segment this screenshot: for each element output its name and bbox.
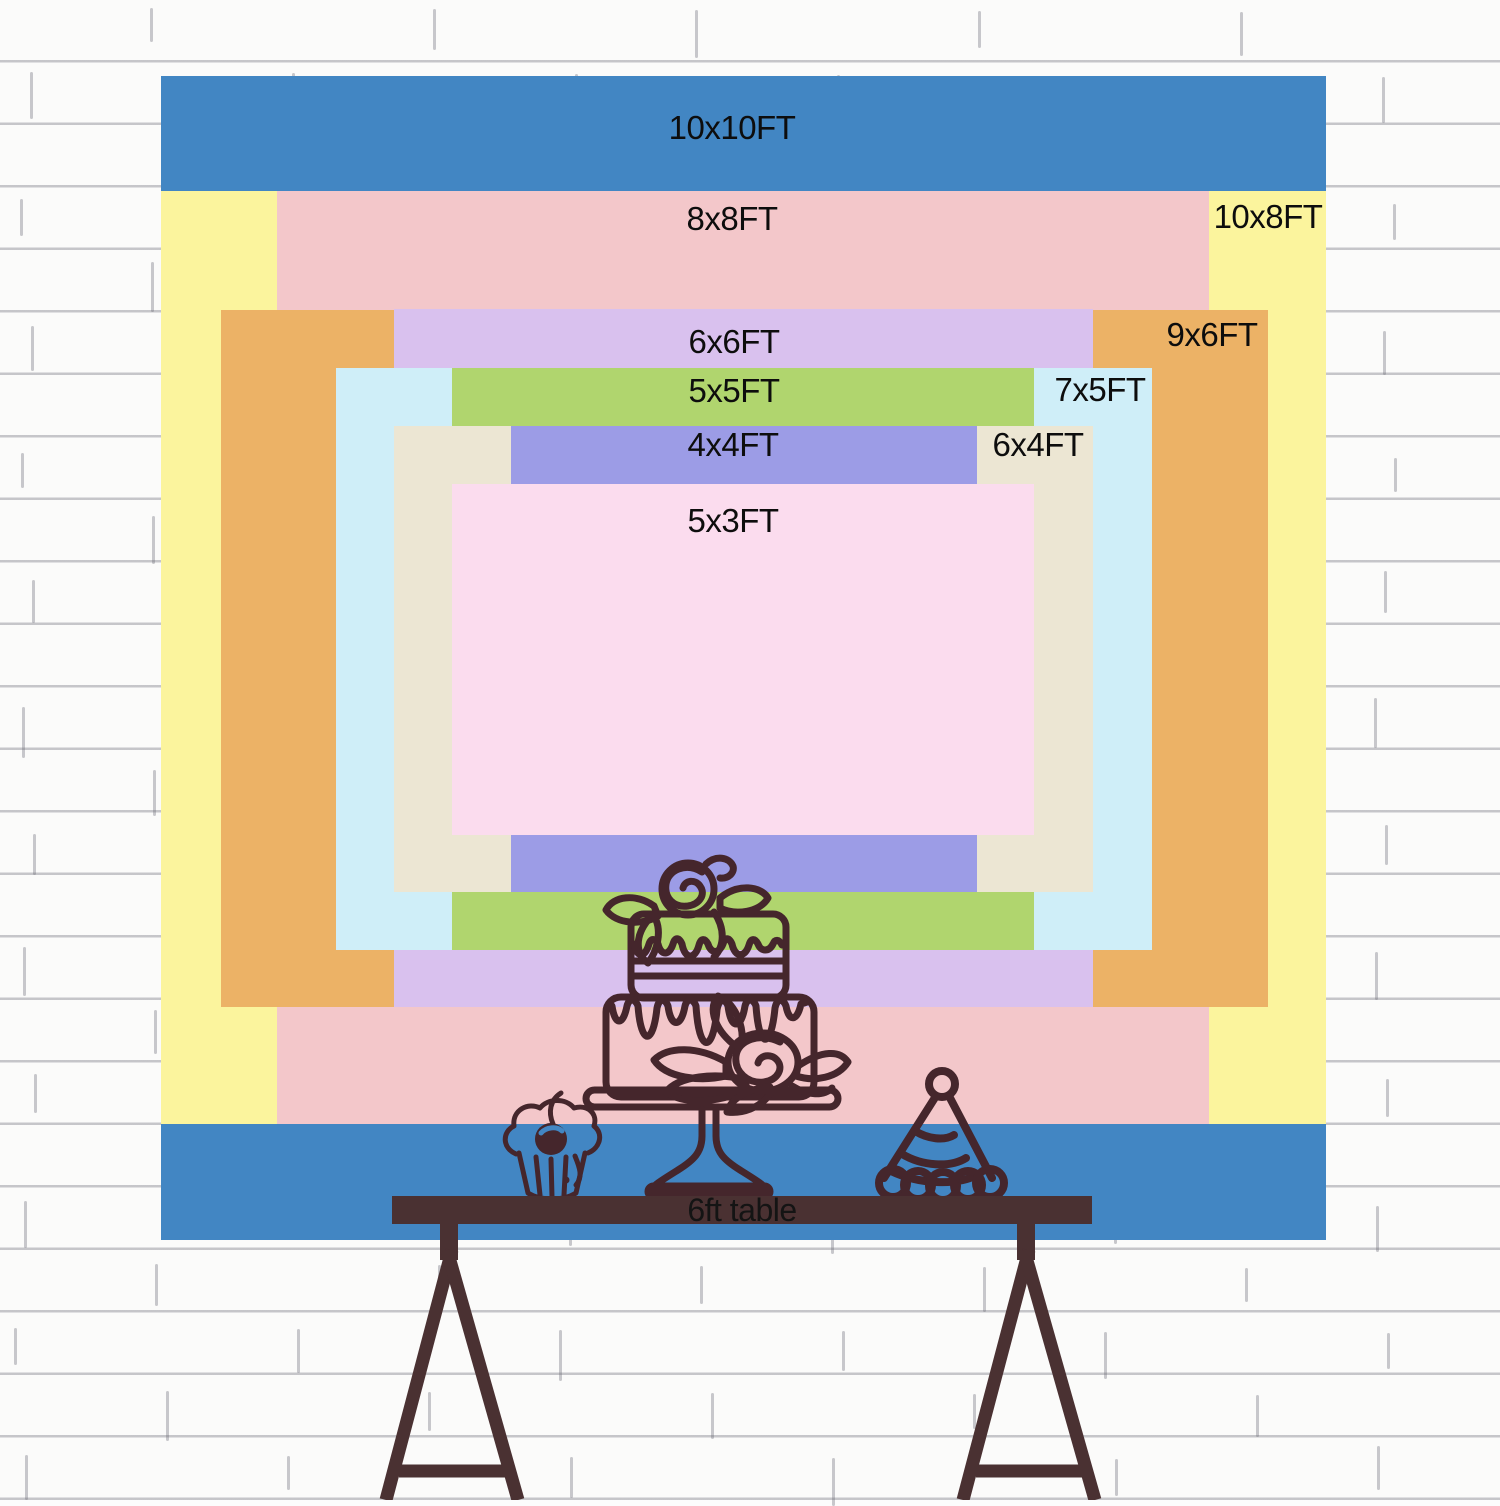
size-label-10x8: 10x8FT (1214, 198, 1323, 236)
size-label-5x5: 5x5FT (688, 372, 779, 410)
table-label: 6ft table (687, 1192, 796, 1229)
size-label-8x8: 8x8FT (686, 200, 777, 238)
table-top: 6ft table (392, 1196, 1092, 1224)
size-label-6x4: 6x4FT (992, 426, 1083, 464)
size-label-6x6: 6x6FT (688, 323, 779, 361)
size-label-7x5: 7x5FT (1054, 371, 1145, 409)
size-label-4x4: 4x4FT (687, 426, 778, 464)
backdrop-size-chart: 10x10FT10x8FT8x8FT9x6FT6x6FT7x5FT5x5FT6x… (0, 0, 1500, 1500)
size-label-10x10: 10x10FT (669, 109, 796, 147)
size-chart: 10x10FT10x8FT8x8FT9x6FT6x6FT7x5FT5x5FT6x… (0, 0, 1500, 1500)
size-label-5x3: 5x3FT (687, 502, 778, 540)
size-label-9x6: 9x6FT (1166, 316, 1257, 354)
